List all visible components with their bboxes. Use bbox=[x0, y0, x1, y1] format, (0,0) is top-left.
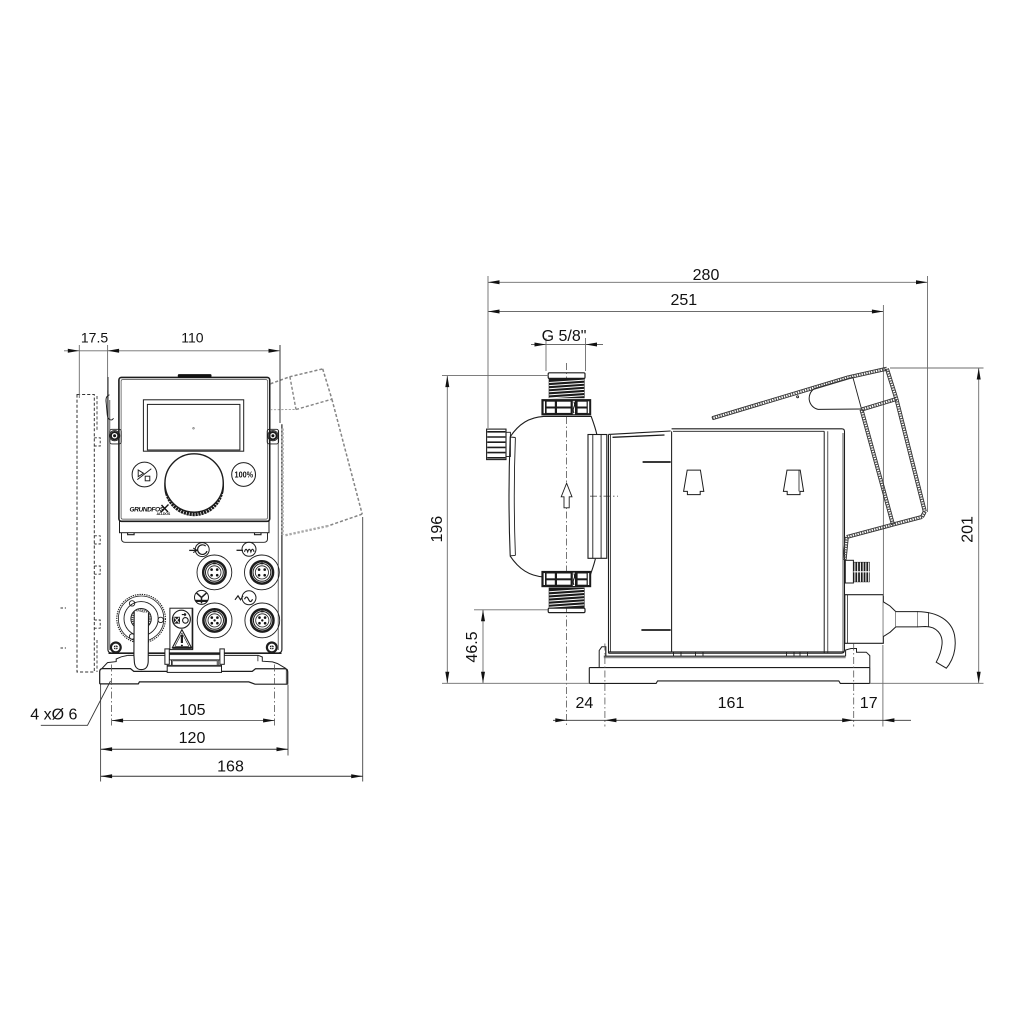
svg-text:120: 120 bbox=[179, 730, 206, 747]
svg-text:110: 110 bbox=[181, 330, 204, 346]
svg-text:17: 17 bbox=[860, 695, 878, 712]
svg-text:46.5: 46.5 bbox=[464, 631, 481, 662]
svg-text:168: 168 bbox=[217, 759, 244, 776]
svg-text:17.5: 17.5 bbox=[81, 330, 108, 346]
svg-text:196: 196 bbox=[429, 516, 446, 543]
svg-text:105: 105 bbox=[179, 702, 206, 719]
svg-text:161: 161 bbox=[718, 695, 745, 712]
svg-text:201: 201 bbox=[960, 516, 977, 543]
svg-text:4 xØ 6: 4 xØ 6 bbox=[30, 707, 77, 724]
svg-text:ALLDOS: ALLDOS bbox=[157, 512, 171, 516]
svg-text:24: 24 bbox=[576, 695, 594, 712]
svg-text:100%: 100% bbox=[235, 471, 254, 480]
svg-text:251: 251 bbox=[670, 292, 697, 309]
svg-text:G 5/8": G 5/8" bbox=[542, 328, 587, 345]
svg-text:280: 280 bbox=[693, 267, 720, 284]
